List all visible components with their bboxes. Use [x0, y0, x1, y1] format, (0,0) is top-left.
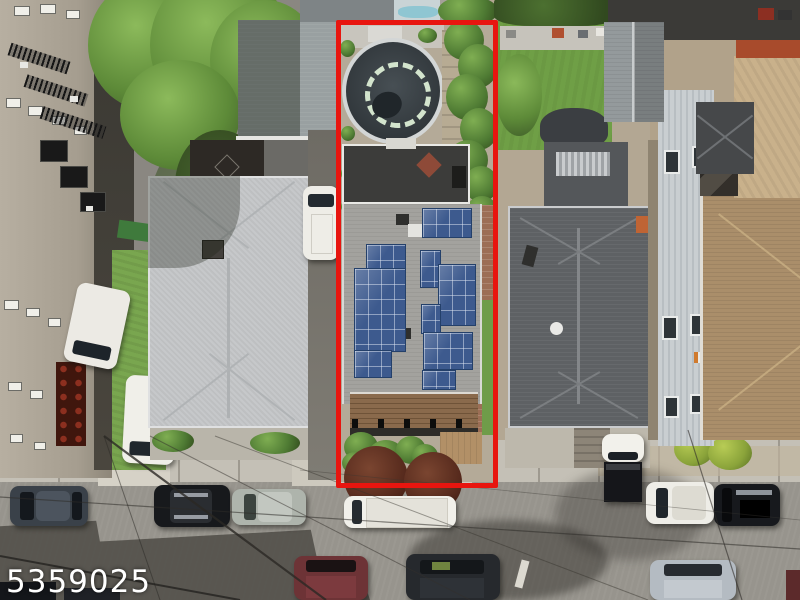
patio-item [506, 30, 516, 38]
sidewalk-bush-2 [708, 436, 752, 470]
aerial-photo: 5359025 [0, 0, 800, 600]
fire-escape-balcony [60, 166, 88, 188]
right-backyard-hedge [494, 0, 618, 26]
red-buckets-stack [56, 362, 86, 446]
cargo-top [606, 464, 640, 470]
left-roof-ridge [227, 258, 230, 418]
suv-hood [664, 580, 722, 598]
near-car-maroon [294, 556, 368, 600]
suv-roof [672, 486, 706, 520]
apartment-window [48, 318, 61, 327]
van-windshield [308, 194, 334, 207]
parked-car-silver [232, 489, 306, 525]
right-roof-round-vent [550, 322, 563, 335]
roof-rail [174, 515, 208, 519]
apartment-window [10, 434, 23, 443]
neighbor-roof-strip-top [300, 0, 396, 22]
apartment-window [4, 300, 19, 310]
roof-rail [736, 490, 772, 495]
suv-glass [656, 488, 668, 518]
patio-item [578, 30, 588, 38]
neighbor-pool-water [398, 6, 438, 18]
apartment-window [8, 382, 22, 391]
gable-shade-half [634, 22, 664, 122]
van-glass [352, 500, 362, 524]
ac-unit [20, 62, 28, 68]
ac-unit [86, 206, 93, 211]
parked-car-dark-sedan [10, 486, 88, 526]
pyramid-garage-roof [696, 102, 754, 174]
dash-plants [432, 562, 450, 570]
siding-window [662, 316, 678, 340]
parked-van-white [344, 496, 456, 528]
patio-item-grill [552, 28, 564, 38]
near-suv-silver [650, 560, 736, 600]
right-yard-tree [496, 54, 542, 136]
box-truck-cargo [604, 462, 642, 502]
apartment-window [40, 4, 56, 14]
near-car-darkred-edge [786, 570, 800, 600]
truck-glass [608, 452, 638, 460]
left-house-hedge [250, 432, 300, 454]
car-glass [20, 492, 34, 520]
near-car-dark-green-dash [406, 554, 500, 600]
property-boundary-outline [336, 20, 498, 488]
van-roof-seam [311, 214, 333, 254]
car-glass [420, 560, 484, 574]
sunroof [740, 500, 770, 518]
mls-number-watermark: 5359025 [6, 564, 151, 600]
patio-item [596, 28, 604, 36]
right-roof-ridge [577, 228, 580, 404]
brown-roof-house [700, 188, 800, 440]
box-truck-cab [602, 434, 644, 462]
apartment-window [66, 10, 80, 19]
orange-tarp [736, 38, 800, 58]
left-house-hedge [152, 430, 194, 452]
suv-glass [722, 488, 732, 522]
car-hood [306, 576, 356, 598]
topright-dark-item [778, 10, 792, 20]
parked-suv-white [646, 482, 714, 524]
apartment-window [34, 442, 46, 450]
right-house-metal-roof [556, 152, 610, 176]
car-roof [258, 492, 292, 522]
apartment-window [6, 98, 21, 108]
white-van-driveway [303, 186, 339, 260]
ac-unit [70, 96, 78, 102]
van-roof [366, 498, 448, 528]
parked-suv-black [154, 485, 230, 527]
apartment-window [26, 308, 40, 317]
suv-glass [664, 564, 722, 576]
car-glass [72, 492, 82, 520]
car-roof [36, 491, 70, 521]
roof-rail [174, 493, 208, 497]
siding-window [664, 396, 679, 418]
apartment-window [30, 390, 43, 399]
apartment-window [14, 6, 30, 16]
car-glass [244, 494, 256, 520]
topright-red-item [758, 8, 774, 20]
parked-suv-black-2 [714, 484, 780, 526]
fire-escape-balcony [40, 140, 68, 162]
fire-escape-balcony [80, 192, 106, 212]
roof-tree-shadow [238, 20, 300, 138]
car-hood [420, 578, 484, 598]
siding-window [664, 150, 680, 174]
truck-windshield [72, 340, 112, 362]
car-glass [306, 560, 356, 572]
